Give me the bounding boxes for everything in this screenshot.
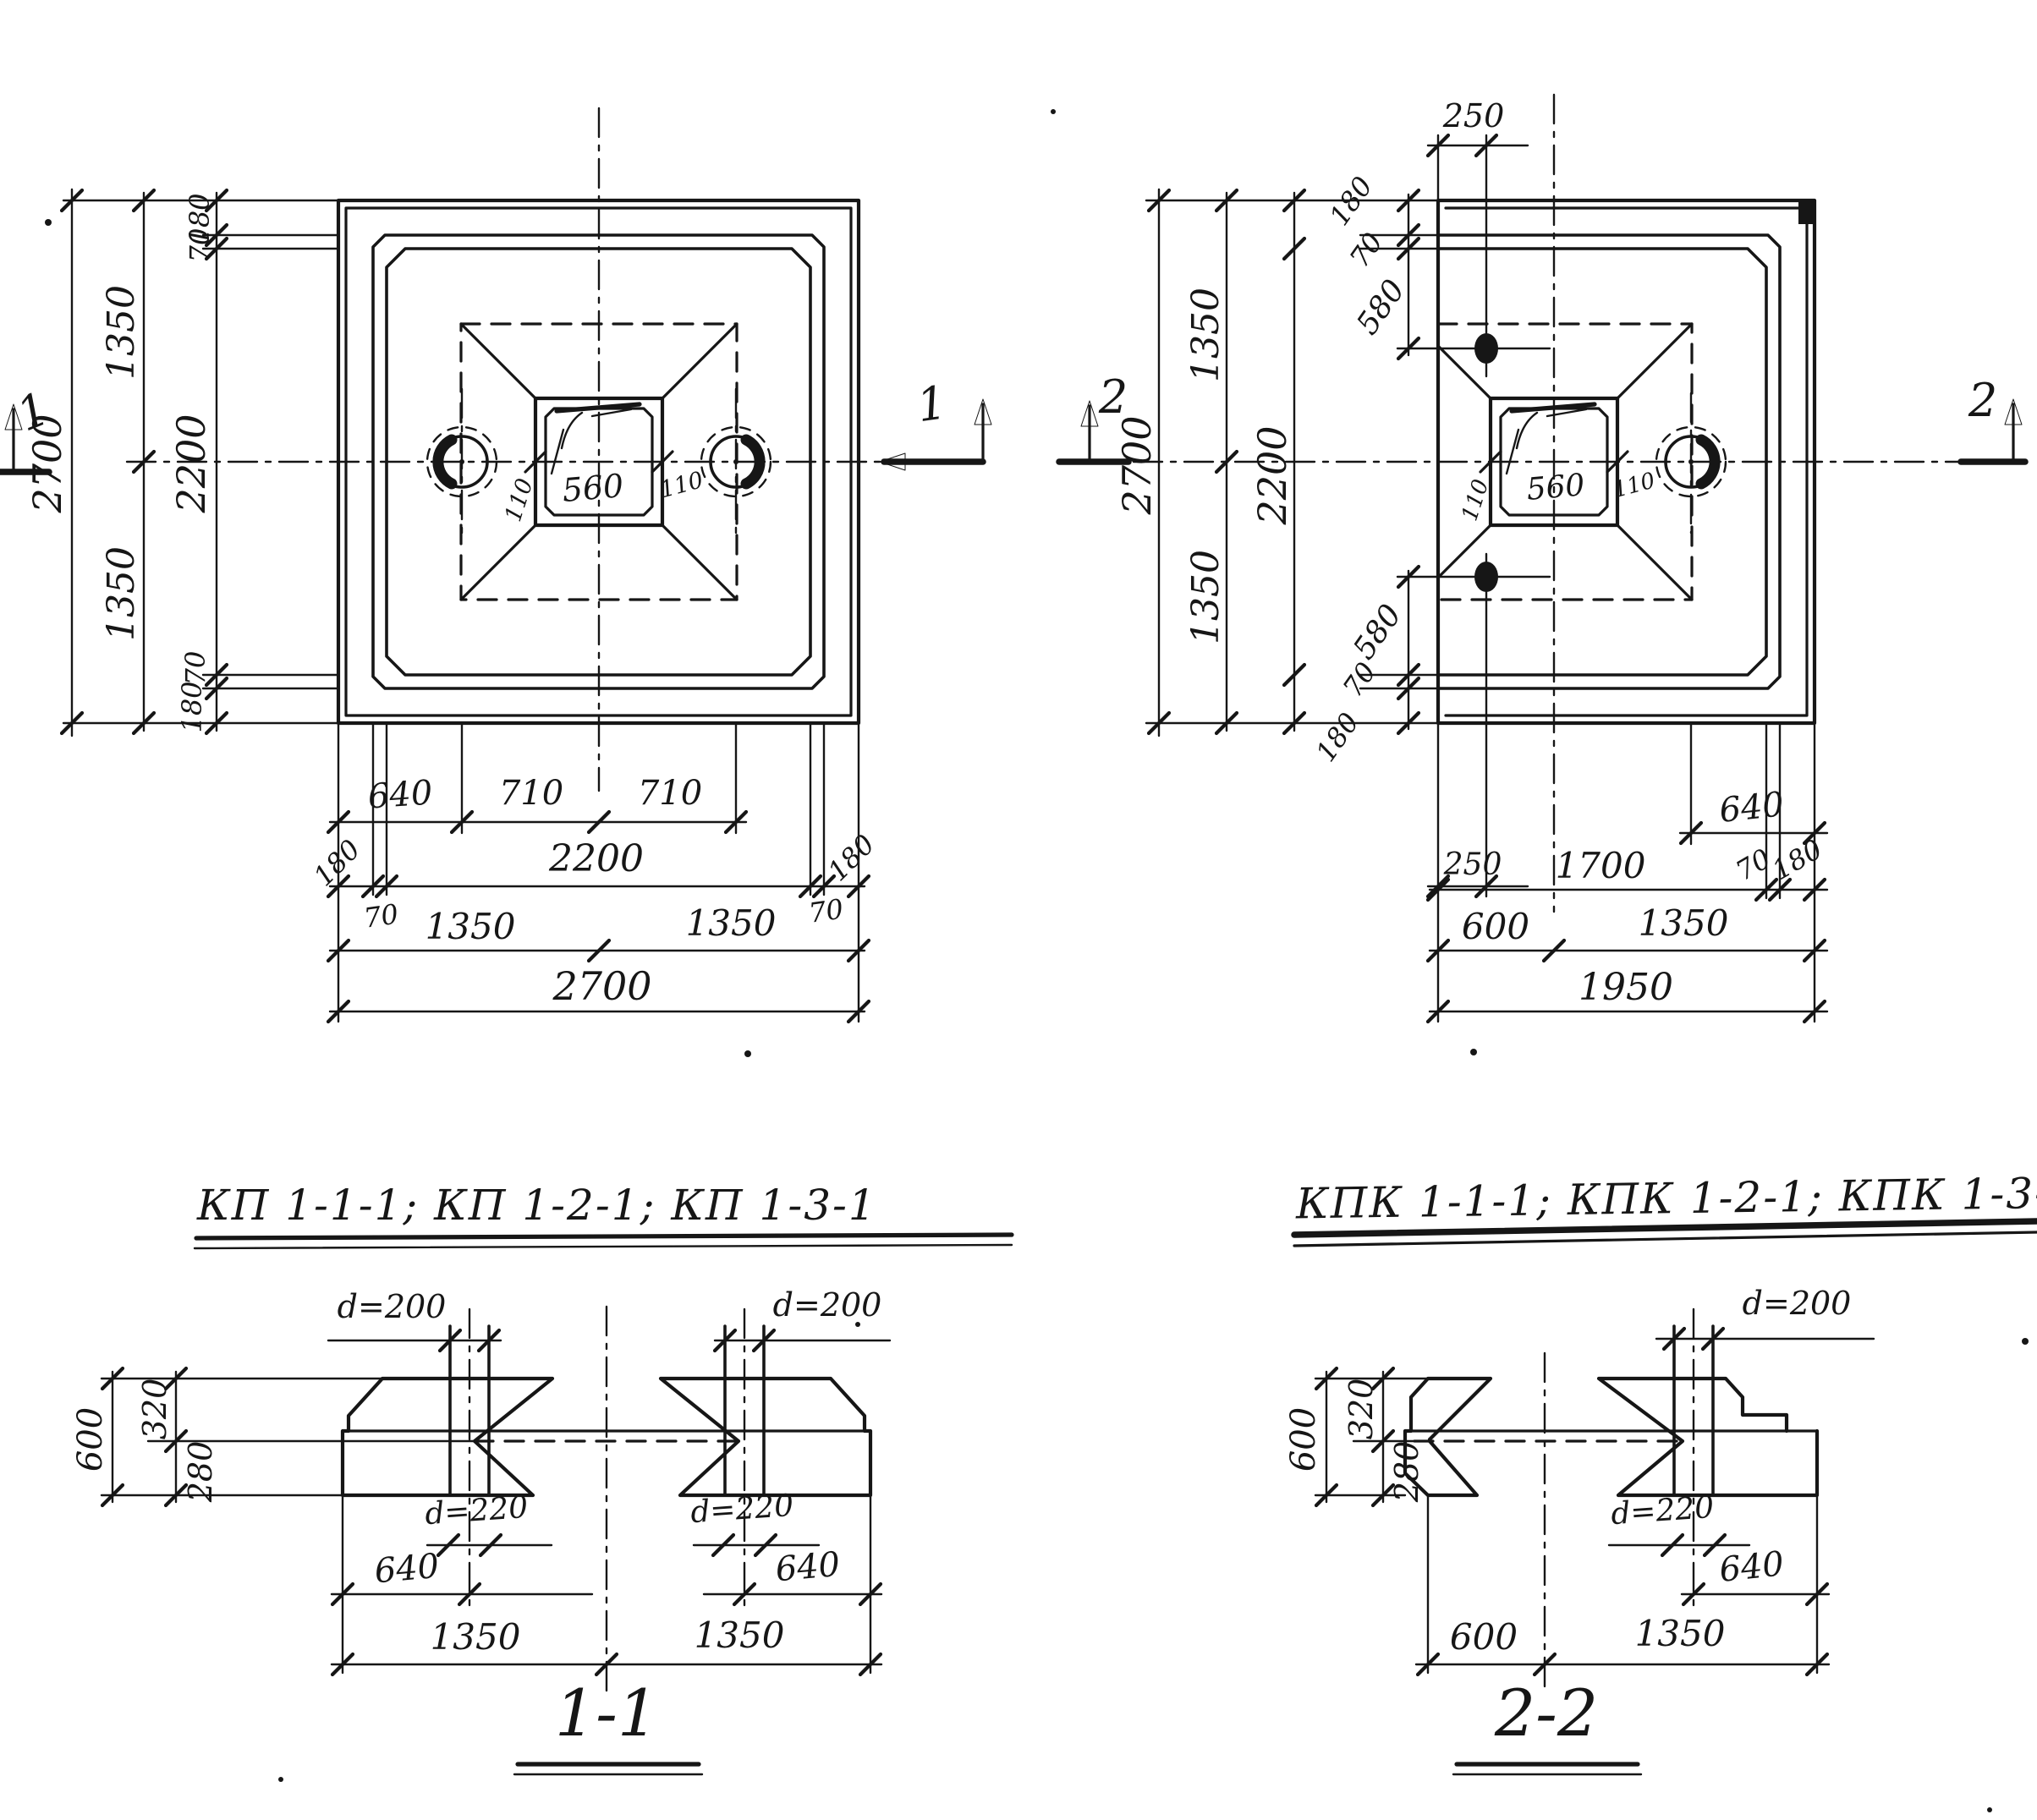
section-marker-label: 2 [1968, 374, 1997, 427]
slab-profile [1405, 1379, 1817, 1495]
dimension-label: 70 [362, 897, 401, 934]
dimension-label: 280 [182, 1441, 219, 1504]
hole-diameter-label: d=200 [338, 1288, 447, 1325]
dimension-label: 1700 [1556, 845, 1646, 886]
hole-diameter-label: d=200 [773, 1286, 882, 1324]
dimension-label: 2700 [552, 963, 651, 1009]
lifting-hole [1656, 427, 1726, 496]
socket-dimension: 110 [657, 467, 706, 503]
plan-right-title: КПК 1-1-1; КПК 1-2-1; КПК 1-3-1 [1296, 1169, 2037, 1229]
dimension-label: 2200 [1249, 425, 1295, 525]
dimension-label: 1350 [686, 902, 777, 944]
section-marker-label: 1 [9, 381, 56, 441]
section-title: 2-2 [1494, 1675, 1598, 1751]
dimension-label: 710 [638, 774, 702, 813]
scan-artifact [1798, 202, 1813, 224]
socket-dimension: 110 [1457, 476, 1494, 524]
socket-dimension: 110 [500, 475, 538, 525]
hole-diameter-label: d=200 [1743, 1285, 1852, 1322]
dimension-label: 1350 [100, 285, 143, 380]
dimension-label: 180 [307, 833, 366, 892]
dimension-label: 600 [1284, 1407, 1323, 1472]
technical-drawing: 180 70 1350 2700 2200 1350 70 180 640 71… [0, 0, 2037, 1820]
dimension-label: 640 [774, 1545, 842, 1589]
dimension-label: 320 [136, 1379, 173, 1440]
dimension-label: 320 [1342, 1379, 1380, 1440]
plan-left-title: КП 1-1-1; КП 1-2-1; КП 1-3-1 [197, 1181, 877, 1230]
dimension-label: 640 [1717, 785, 1786, 831]
section-1-1-view: d=200 d=200 600 320 280 d=220 d=220 640 … [71, 1286, 890, 1774]
lifting-hole-right [701, 427, 771, 496]
dimension-label: 2700 [1114, 415, 1160, 515]
dimension-label: 70 [1343, 227, 1389, 273]
dimension-label: 1350 [695, 1614, 785, 1656]
dimension-label: 70 [179, 651, 211, 686]
dimension-label: 180 [1309, 707, 1365, 768]
extension-lines [1315, 1379, 1817, 1673]
dimension-label: 70 [1730, 842, 1776, 887]
dimension-label: 710 [499, 774, 563, 813]
dimension-label: 2200 [548, 837, 644, 880]
socket-dimension: 560 [1525, 468, 1586, 507]
dimension-label: 70 [184, 228, 216, 263]
dimension-label: 600 [71, 1407, 110, 1472]
dimension-label: 600 [1450, 1616, 1518, 1658]
dimension-label: 640 [1717, 1544, 1786, 1590]
dimension-label: 70 [807, 892, 846, 929]
dimension-label: 1350 [1184, 550, 1227, 644]
section-title: 1-1 [555, 1675, 658, 1751]
plan-left-view: 180 70 1350 2700 2200 1350 70 180 640 71… [0, 108, 991, 1022]
dimension-label: 600 [1462, 906, 1529, 947]
section-marker-label: 2 [1098, 370, 1128, 424]
dimension-label: 180 [176, 681, 208, 732]
dimension-label: 1350 [431, 1616, 521, 1658]
hole-diameter-label: d=220 [689, 1488, 794, 1530]
section-marker-label: 1 [914, 376, 950, 432]
dimension-label: 250 [1442, 97, 1505, 134]
section-2-2-view: d=200 600 320 280 d=220 640 600 1350 2-2 [1284, 1285, 1874, 1774]
socket-dimension: 560 [561, 467, 625, 509]
dimension-label: 2200 [168, 414, 214, 513]
dimension-label: 580 [1350, 274, 1412, 342]
plan-right-view: 250 2700 1350 2200 1350 180 70 580 580 7… [1059, 95, 2025, 1022]
dimension-label: 250 [1443, 847, 1502, 882]
blueprint-page: 180 70 1350 2700 2200 1350 70 180 640 71… [0, 0, 2037, 1820]
dimension-label: 580 [1347, 599, 1408, 666]
dimension-label: 640 [373, 1547, 441, 1591]
hole-diameter-label: d=220 [424, 1490, 529, 1532]
hole-diameter-label: d=220 [1610, 1490, 1715, 1532]
dimension-label: 280 [1388, 1441, 1425, 1504]
dimension-label: 1350 [100, 546, 143, 641]
dimension-label: 640 [366, 773, 433, 816]
dimension-label: 1350 [1639, 902, 1729, 944]
dimension-label: 1950 [1579, 966, 1673, 1009]
dimension-label: 1350 [1184, 288, 1227, 382]
dimension-label: 180 [1323, 171, 1379, 232]
dimension-top [1428, 135, 1528, 156]
dimension-label: 1350 [426, 906, 516, 947]
dimension-label: 1350 [1635, 1613, 1726, 1654]
lifting-hole-left [427, 427, 497, 496]
